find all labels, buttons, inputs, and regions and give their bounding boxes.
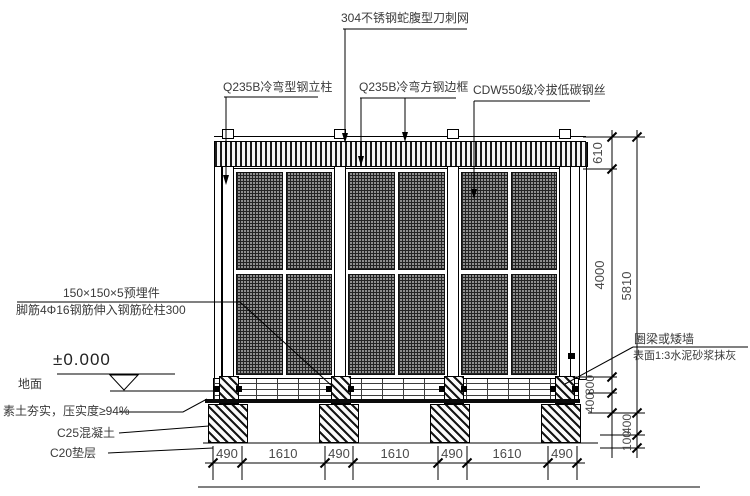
mesh-bay [232,168,336,379]
embed-plate [214,386,220,392]
embed-plate [236,386,242,392]
razor-wire-band [214,142,588,167]
label-ring-beam: 圈梁或矮墙 [634,333,694,346]
post-cap [447,129,459,139]
mesh-panel [236,172,283,270]
concrete-footing [541,404,581,443]
label-cushion: C20垫层 [50,447,96,460]
mesh-panel [461,274,508,375]
label-anchor-bar: 脚筋4Φ16钢筋伸入钢筋砼柱300 [16,304,186,317]
ground-beam [205,399,580,403]
mesh-panel [461,172,508,270]
mesh-panel [286,172,332,270]
dim-4000: 4000 [592,245,606,305]
label-level-mark: ±0.000 [53,353,111,366]
concrete-footing [319,404,359,443]
embed-plate [572,386,578,392]
dim-490: 490 [427,446,477,461]
label-soil: 素土夯实，压实度≥94% [3,405,130,418]
dim-1610: 1610 [370,446,420,461]
mesh-panel [398,274,445,375]
mesh-panel [511,274,557,375]
label-concrete: C25混凝土 [57,427,115,440]
label-razor-mesh: 304不锈钢蛇腹型刀刺网 [340,12,470,25]
mesh-bay [344,168,449,379]
mesh-panel [348,274,395,375]
mesh-panel [511,172,557,270]
mesh-panel [286,274,332,375]
mesh-panel [236,274,283,375]
concrete-footing [430,404,470,443]
post-cap [222,129,234,139]
label-plaster: 表面1:3水泥砂浆抹灰 [633,350,736,363]
post-cap [559,129,571,139]
dim-5810: 5810 [619,256,633,316]
label-steel-wire: CDW550级冷拔低碳钢丝 [473,84,606,97]
label-steel-post: Q235B冷弯型钢立柱 [223,81,332,94]
embed-plate [461,386,467,392]
steel-post [447,166,459,380]
end-frame-member [214,166,222,380]
dim-610: 610 [590,123,604,183]
steel-post [222,166,234,380]
embed-plate [439,386,445,392]
embed-plate [550,386,556,392]
dim-1610: 1610 [258,446,308,461]
dim-490: 490 [202,446,252,461]
steel-post [559,166,571,380]
mesh-panel [398,172,445,270]
dim-1610: 1610 [482,446,532,461]
mesh-panel [348,172,395,270]
label-embed-plate: 150×150×5预埋件 [63,287,160,300]
post-cap [334,129,346,139]
dim-490: 490 [537,446,587,461]
embed-plate [326,386,332,392]
mesh-bay [457,168,561,379]
concrete-footing [208,404,248,443]
steel-post [334,166,346,380]
label-edge-frame: Q235B冷弯方钢边框 [359,81,468,94]
fence-construction-drawing: 304不锈钢蛇腹型刀刺网 Q235B冷弯型钢立柱 Q235B冷弯方钢边框 CDW… [0,0,750,496]
dim-400-wall: 400 [583,373,597,433]
embed-plate [568,353,575,359]
embed-plate [348,386,354,392]
label-ground: 地面 [18,378,42,391]
dim-490: 490 [314,446,364,461]
dim-100-cushion: 100 [620,411,634,471]
end-frame-member [579,166,587,380]
